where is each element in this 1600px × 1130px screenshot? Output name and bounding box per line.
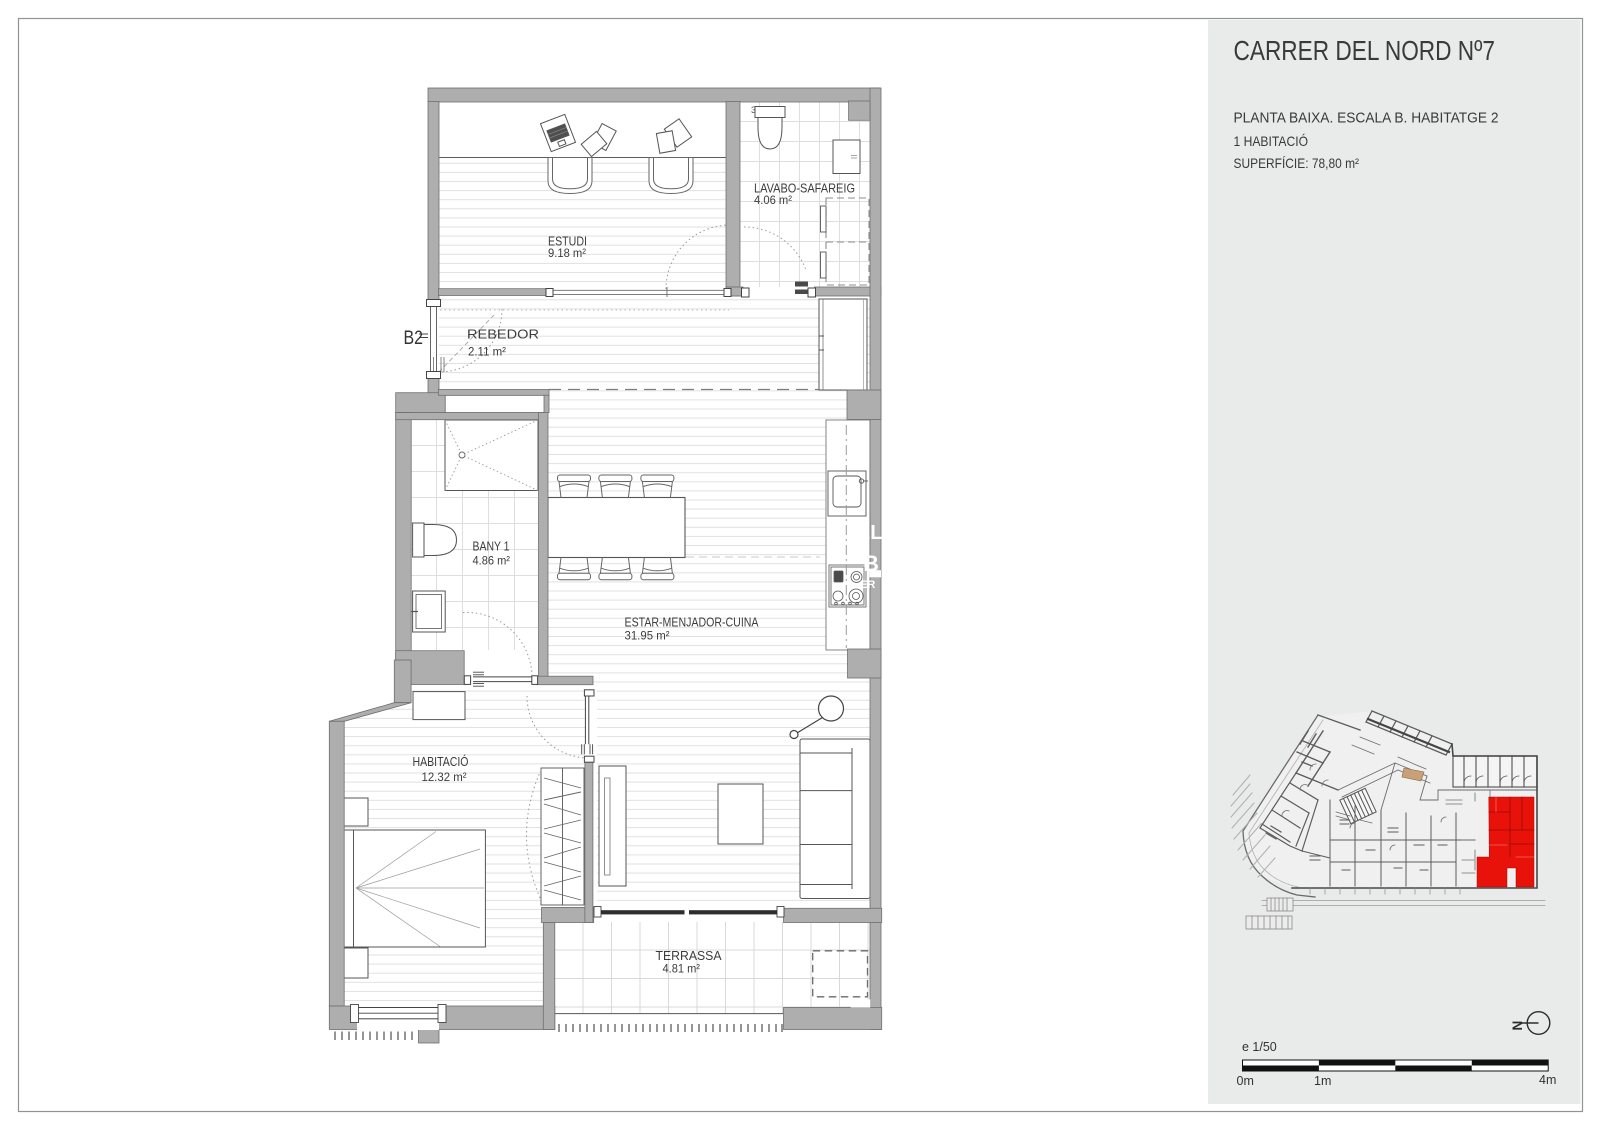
svg-text:4.06 m²: 4.06 m² (754, 193, 792, 207)
svg-text:HABITACIÓ: HABITACIÓ (413, 754, 469, 769)
svg-text:4.81 m²: 4.81 m² (663, 962, 701, 976)
svg-text:ESTAR-MENJADOR-CUINA: ESTAR-MENJADOR-CUINA (625, 615, 759, 630)
svg-text:PLANTA BAIXA. ESCALA B. HABITA: PLANTA BAIXA. ESCALA B. HABITATGE 2 (1234, 111, 1499, 127)
svg-text:1 HABITACIÓ: 1 HABITACIÓ (1234, 133, 1309, 149)
svg-text:9.18 m²: 9.18 m² (548, 246, 586, 260)
svg-text:ER: ER (860, 579, 875, 591)
svg-text:LL: LL (858, 522, 882, 544)
svg-text:0m: 0m (1237, 1074, 1254, 1088)
svg-text:e 1/50: e 1/50 (1242, 1040, 1277, 1054)
svg-text:2.11 m²: 2.11 m² (468, 345, 506, 359)
svg-text:BANY 1: BANY 1 (473, 539, 510, 554)
svg-text:REBEDOR: REBEDOR (467, 327, 539, 342)
svg-text:31.95 m²: 31.95 m² (625, 629, 670, 643)
svg-text:SUPERFÍCIE: 78,80 m²: SUPERFÍCIE: 78,80 m² (1234, 155, 1360, 171)
svg-text:4m: 4m (1539, 1073, 1556, 1087)
svg-text:3: 3 (751, 105, 756, 115)
svg-text:B2: B2 (404, 327, 424, 349)
svg-text:12.32 m²: 12.32 m² (422, 770, 467, 784)
svg-text:N: N (1510, 1021, 1525, 1031)
svg-text:1m: 1m (1314, 1074, 1331, 1088)
svg-text:CARRER DEL NORD Nº7: CARRER DEL NORD Nº7 (1234, 35, 1496, 66)
svg-text:4.86 m²: 4.86 m² (473, 554, 511, 568)
